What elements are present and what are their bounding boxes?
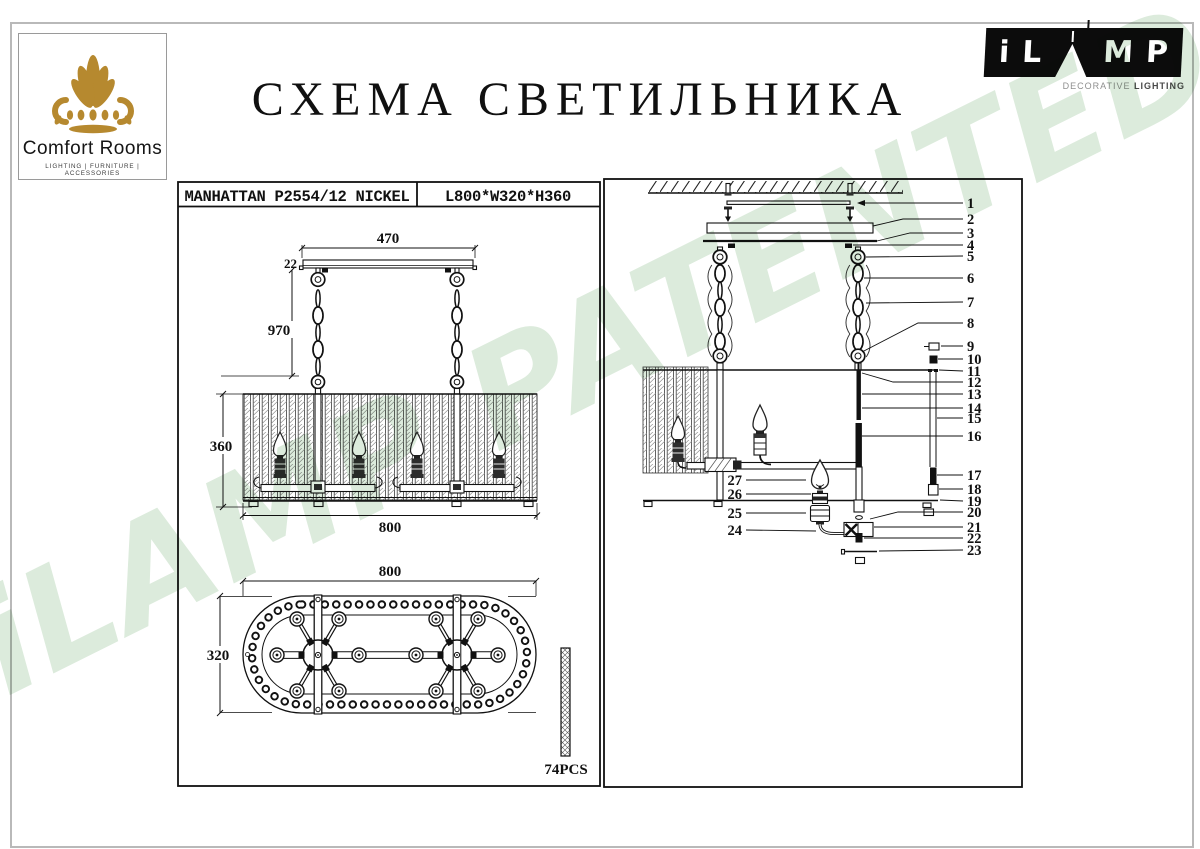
callout-number: 26	[728, 487, 743, 503]
schematic-page: Comfort Rooms LIGHTING | FURNITURE | ACC…	[0, 0, 1200, 849]
spec-panel: MANHATTAN P2554/12 NICKEL L800*W320*H360…	[178, 182, 600, 786]
callout-number: 6	[967, 271, 974, 287]
dimensions-label: L800*W320*H360	[445, 188, 571, 206]
dim-suspension: 970	[268, 323, 291, 339]
crystal-count-label: 74PCS	[544, 762, 587, 778]
callout-number: 5	[967, 249, 974, 265]
dim-shade-height: 360	[210, 439, 233, 455]
crystal-shade-front	[243, 394, 537, 507]
dim-canopy-width: 470	[377, 231, 400, 247]
arm-junction-box	[705, 458, 742, 472]
schematic-canvas: MANHATTAN P2554/12 NICKEL L800*W320*H360…	[0, 0, 1200, 849]
ceiling	[648, 181, 903, 196]
sleeve-icon	[929, 485, 939, 496]
canopy-plate	[707, 223, 873, 233]
callout-number: 16	[967, 429, 982, 445]
callout-number: 1	[967, 196, 974, 212]
dim-bottom-width: 320	[207, 648, 230, 664]
exploded-panel: 1234567891011121314151617181920212223272…	[604, 179, 1022, 787]
nut-icon	[930, 356, 938, 364]
dim-shade-length: 800	[379, 520, 402, 536]
pin-icon	[930, 468, 937, 485]
callout-number: 23	[967, 543, 982, 559]
screw-icon	[929, 343, 939, 350]
callout-number: 20	[967, 505, 982, 521]
callout-number: 15	[967, 411, 982, 427]
callout-number: 7	[967, 295, 974, 311]
model-label: MANHATTAN P2554/12 NICKEL	[184, 188, 409, 206]
callout-number: 8	[967, 316, 974, 332]
callout-number: 25	[728, 506, 743, 522]
dim-bottom-length: 800	[379, 564, 402, 580]
mounting-strip	[727, 201, 850, 204]
dim-canopy-thickness: 22	[284, 256, 297, 271]
callout-number: 24	[728, 523, 743, 539]
